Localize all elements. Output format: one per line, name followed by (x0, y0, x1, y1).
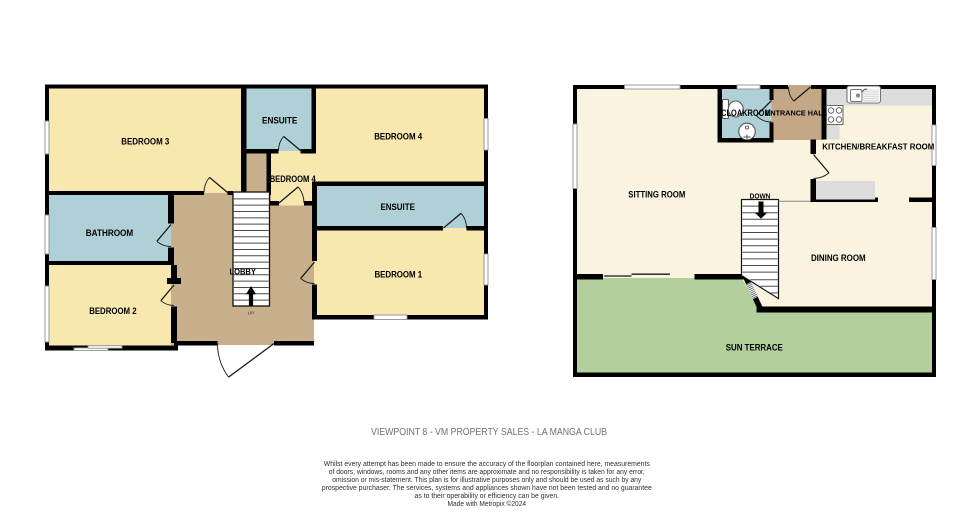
svg-text:prospective purchaser. The ser: prospective purchaser. The services, sys… (322, 485, 652, 492)
svg-text:BEDROOM 4: BEDROOM 4 (270, 174, 317, 184)
svg-text:Whilst every attempt has been: Whilst every attempt has been made to en… (324, 461, 651, 468)
svg-text:Made with Metropix ©2024: Made with Metropix ©2024 (448, 500, 527, 508)
svg-text:as to their operability or eff: as to their operability or efficiency ca… (415, 493, 560, 500)
svg-text:SITTING ROOM: SITTING ROOM (628, 190, 685, 200)
svg-text:ENSUITE: ENSUITE (380, 202, 415, 212)
svg-text:SUN TERRACE: SUN TERRACE (726, 343, 783, 353)
svg-text:ENSUITE: ENSUITE (262, 115, 297, 125)
svg-text:omission or mis-statement. Thi: omission or mis-statement. This plan is … (332, 477, 642, 484)
svg-text:KITCHEN/BREAKFAST ROOM: KITCHEN/BREAKFAST ROOM (822, 141, 934, 151)
svg-text:LOBBY: LOBBY (229, 266, 256, 276)
svg-text:VIEWPOINT 8 - VM PROPERTY SALE: VIEWPOINT 8 - VM PROPERTY SALES - LA MAN… (371, 427, 607, 438)
svg-text:of doors, windows, rooms and a: of doors, windows, rooms and any other i… (329, 469, 645, 476)
svg-text:BATHROOM: BATHROOM (86, 228, 134, 238)
svg-text:UP: UP (248, 311, 254, 316)
svg-text:BEDROOM 4: BEDROOM 4 (374, 131, 423, 141)
svg-text:CLOAKROOM: CLOAKROOM (721, 108, 771, 118)
svg-text:BEDROOM 1: BEDROOM 1 (374, 269, 422, 279)
svg-text:BEDROOM 3: BEDROOM 3 (121, 137, 169, 147)
svg-text:DINING ROOM: DINING ROOM (811, 253, 866, 263)
svg-text:DOWN: DOWN (750, 191, 771, 200)
svg-text:BEDROOM 2: BEDROOM 2 (89, 306, 136, 316)
svg-text:ENTRANCE HALL: ENTRANCE HALL (766, 108, 828, 117)
